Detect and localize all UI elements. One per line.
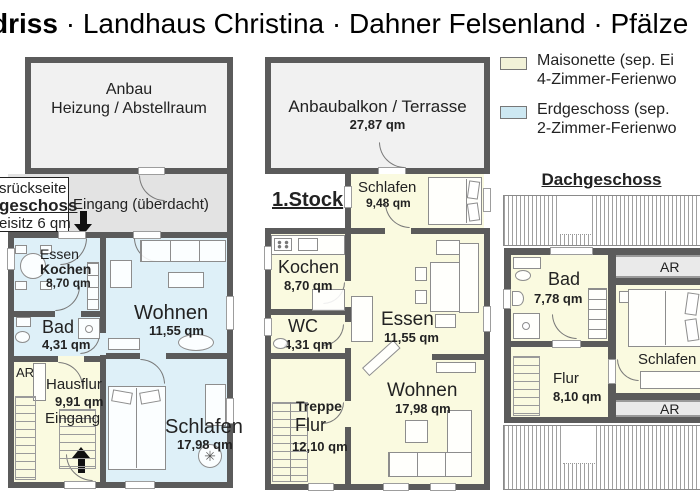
chair-icon xyxy=(415,267,427,281)
legend-swatch-erdgeschoss xyxy=(500,106,527,119)
wall xyxy=(504,248,511,423)
sink-icon xyxy=(16,317,31,327)
kitchen-cabinet-icon xyxy=(351,296,373,342)
label-hausflur-area: 9,91 qm xyxy=(55,395,103,409)
shower-drain-icon xyxy=(522,322,530,330)
window-icon xyxy=(264,318,272,336)
door-threshold xyxy=(64,481,96,489)
window-icon xyxy=(308,483,334,491)
label-hausflur: Hausflur xyxy=(46,377,102,393)
stove-icon xyxy=(274,238,292,251)
terrasse-area: 27,87 qm xyxy=(271,118,484,132)
label-kochen-og: Kochen xyxy=(278,258,339,277)
page-title-rest: · Landhaus Christina · Dahner Felsenland… xyxy=(58,8,688,39)
label-essen-kochen-1: Essen xyxy=(40,247,79,262)
label-kochen-og-area: 8,70 qm xyxy=(284,279,332,293)
window-icon xyxy=(483,306,491,332)
cabinet-icon xyxy=(513,257,541,269)
label-ar-top: AR xyxy=(660,260,679,275)
sink-icon xyxy=(512,291,524,306)
pillow-icon xyxy=(467,202,480,221)
label-schlafen-og: Schlafen xyxy=(358,180,416,196)
shower-drain-icon xyxy=(85,325,93,333)
chair-icon xyxy=(15,245,27,254)
sofa-icon xyxy=(388,452,472,477)
sideboard-icon xyxy=(108,338,140,350)
label-treppe-flur-area: 12,10 qm xyxy=(292,440,348,454)
corner-bench-icon xyxy=(436,240,460,255)
label-ar-eg: AR xyxy=(16,366,34,380)
side-note-line2: geschoss xyxy=(0,197,63,215)
door-gap xyxy=(100,333,106,355)
side-note-line3: eisitz 6 qm xyxy=(0,216,63,232)
door-threshold xyxy=(608,359,616,384)
legend-erdgeschoss-line1: Erdgeschoss (sep. xyxy=(537,102,670,119)
roof-hatch xyxy=(503,195,700,246)
window-icon xyxy=(125,481,155,489)
bed-divider xyxy=(136,388,137,468)
dining-table-icon xyxy=(430,262,460,312)
label-flur-dg-area: 8,10 qm xyxy=(553,390,601,404)
label-wohnen-eg: Wohnen xyxy=(134,303,208,324)
door-gap xyxy=(345,401,351,427)
bed-divider xyxy=(466,179,467,223)
label-bad-eg-area: 4,31 qm xyxy=(42,338,90,352)
label-schlafen-eg-area: 17,98 qm xyxy=(177,438,233,452)
anbau-sublabel: Heizung / Abstellraum xyxy=(31,101,227,118)
label-wc-og-area: 4,31 qm xyxy=(284,338,332,352)
terrasse-label: Anbaubalkon / Terrasse xyxy=(271,98,484,116)
roof-notch xyxy=(560,196,591,235)
label-wohnen-eg-area: 11,55 qm xyxy=(149,324,204,338)
page-title-bold: driss xyxy=(0,8,58,39)
label-wohnen-og-area: 17,98 qm xyxy=(395,402,451,416)
armchair-icon xyxy=(110,260,132,288)
chair-icon xyxy=(435,314,456,328)
window-icon xyxy=(550,247,593,255)
label-treppe: Treppe xyxy=(296,399,342,414)
door-gap xyxy=(58,356,84,362)
ar-strip-bottom xyxy=(616,400,700,417)
side-note-line1: srückseite xyxy=(0,181,63,197)
dachgeschoss-label: Dachgeschoss xyxy=(503,171,700,189)
side-note-box: srückseite geschoss eisitz 6 qm xyxy=(0,177,69,232)
door-gap xyxy=(385,228,411,234)
label-essen-kochen-2: Kochen xyxy=(40,262,91,277)
label-wohnen-og: Wohnen xyxy=(387,381,457,401)
page-title: driss · Landhaus Christina · Dahner Fels… xyxy=(0,8,688,40)
label-essen-og-area: 11,55 qm xyxy=(384,331,439,345)
stairs-icon xyxy=(15,396,36,480)
label-hausflur-eingang: Eingang xyxy=(45,411,100,427)
wall xyxy=(608,255,616,417)
window-icon xyxy=(483,188,491,212)
wall xyxy=(227,174,233,232)
legend-erdgeschoss-line2: 2-Zimmer-Ferienwo xyxy=(537,121,677,138)
ar-strip-top xyxy=(616,255,700,278)
legend-maisonette-line1: Maisonette (sep. Ei xyxy=(537,53,674,70)
toilet-icon xyxy=(273,338,288,349)
roof-notch xyxy=(563,426,595,464)
roof-hatch xyxy=(503,425,700,490)
toilet-icon xyxy=(15,331,30,343)
radiator-icon xyxy=(588,288,607,339)
floorplan-canvas: Anbau Heizung / Abstellraum srückseite g… xyxy=(0,0,700,500)
label-bad-eg: Bad xyxy=(42,318,74,337)
door-threshold xyxy=(138,167,165,175)
coffee-table-icon xyxy=(168,272,204,288)
legend-maisonette-line2: 4-Zimmer-Ferienwo xyxy=(537,72,677,89)
label-ar-bottom: AR xyxy=(660,402,679,417)
stairs-divider xyxy=(290,402,291,482)
label-schlafen-dg: Schlafen 1 xyxy=(638,352,700,368)
label-bad-dg: Bad xyxy=(548,270,580,289)
wall xyxy=(504,248,700,255)
entry-label: Eingang (überdacht) xyxy=(73,197,209,213)
label-flur-og: Flur xyxy=(295,416,326,435)
sofa-icon xyxy=(140,240,226,262)
label-essen-kochen-area: 8,70 qm xyxy=(46,277,91,290)
stairs-icon xyxy=(513,356,540,416)
window-icon xyxy=(7,248,15,270)
arrow-down-icon xyxy=(80,211,87,225)
label-essen-og: Essen xyxy=(381,310,434,330)
toilet-icon xyxy=(515,270,531,281)
wall xyxy=(616,278,700,285)
door-gap xyxy=(140,353,166,359)
label-wc-og: WC xyxy=(288,317,318,336)
label-schlafen-eg: Schlafen xyxy=(165,417,243,438)
label-bad-dg-area: 7,78 qm xyxy=(534,292,582,306)
sofa-icon xyxy=(447,410,472,453)
sideboard-icon xyxy=(436,362,476,373)
window-icon xyxy=(430,483,456,491)
label-flur-dg: Flur xyxy=(553,371,579,387)
bed-divider xyxy=(665,291,666,345)
chair-icon xyxy=(15,281,27,290)
door-threshold xyxy=(552,340,581,348)
bench-icon xyxy=(640,371,700,389)
corner-bench-icon xyxy=(459,243,479,313)
stock1-label: 1.Stock xyxy=(272,190,343,211)
window-icon xyxy=(383,483,409,491)
sink-icon xyxy=(298,238,318,251)
window-icon xyxy=(503,289,511,309)
window-icon xyxy=(344,186,352,208)
wall xyxy=(504,417,700,423)
table-icon xyxy=(405,420,428,443)
legend-swatch-maisonette xyxy=(500,57,527,70)
anbau-label: Anbau xyxy=(31,82,227,99)
chair-icon xyxy=(415,290,427,304)
window-icon xyxy=(226,296,234,330)
wall xyxy=(616,393,700,400)
